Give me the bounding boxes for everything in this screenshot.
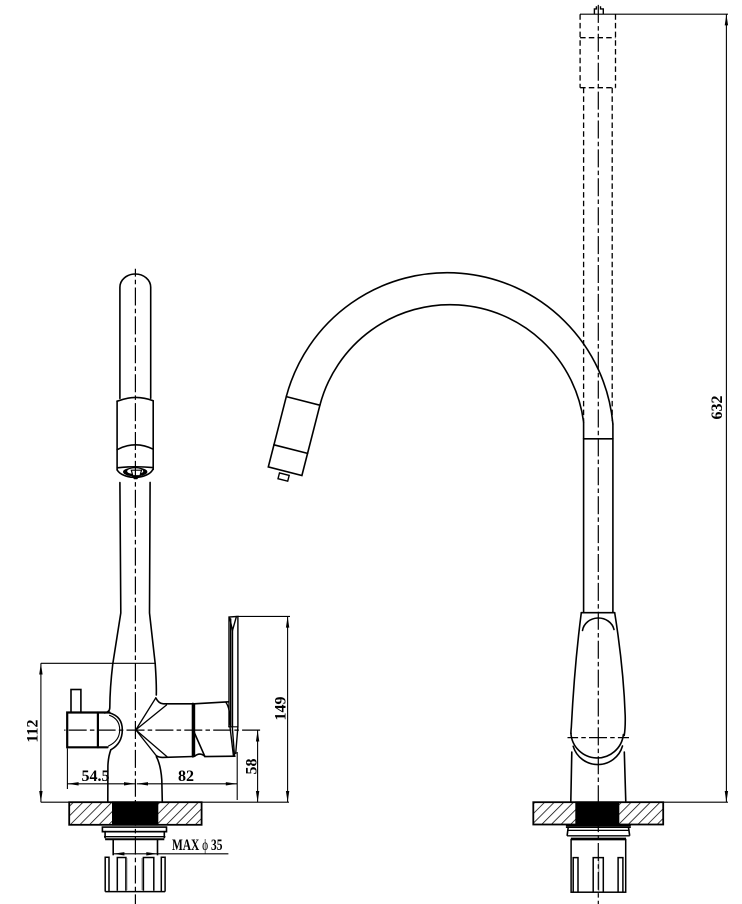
svg-text:58: 58	[244, 759, 261, 775]
svg-text:112: 112	[25, 719, 42, 742]
svg-text:MAX ϕ 35: MAX ϕ 35	[172, 837, 223, 854]
svg-text:54.5: 54.5	[82, 768, 110, 785]
svg-text:149: 149	[273, 697, 290, 721]
svg-text:82: 82	[178, 768, 194, 785]
svg-text:632: 632	[709, 396, 726, 420]
